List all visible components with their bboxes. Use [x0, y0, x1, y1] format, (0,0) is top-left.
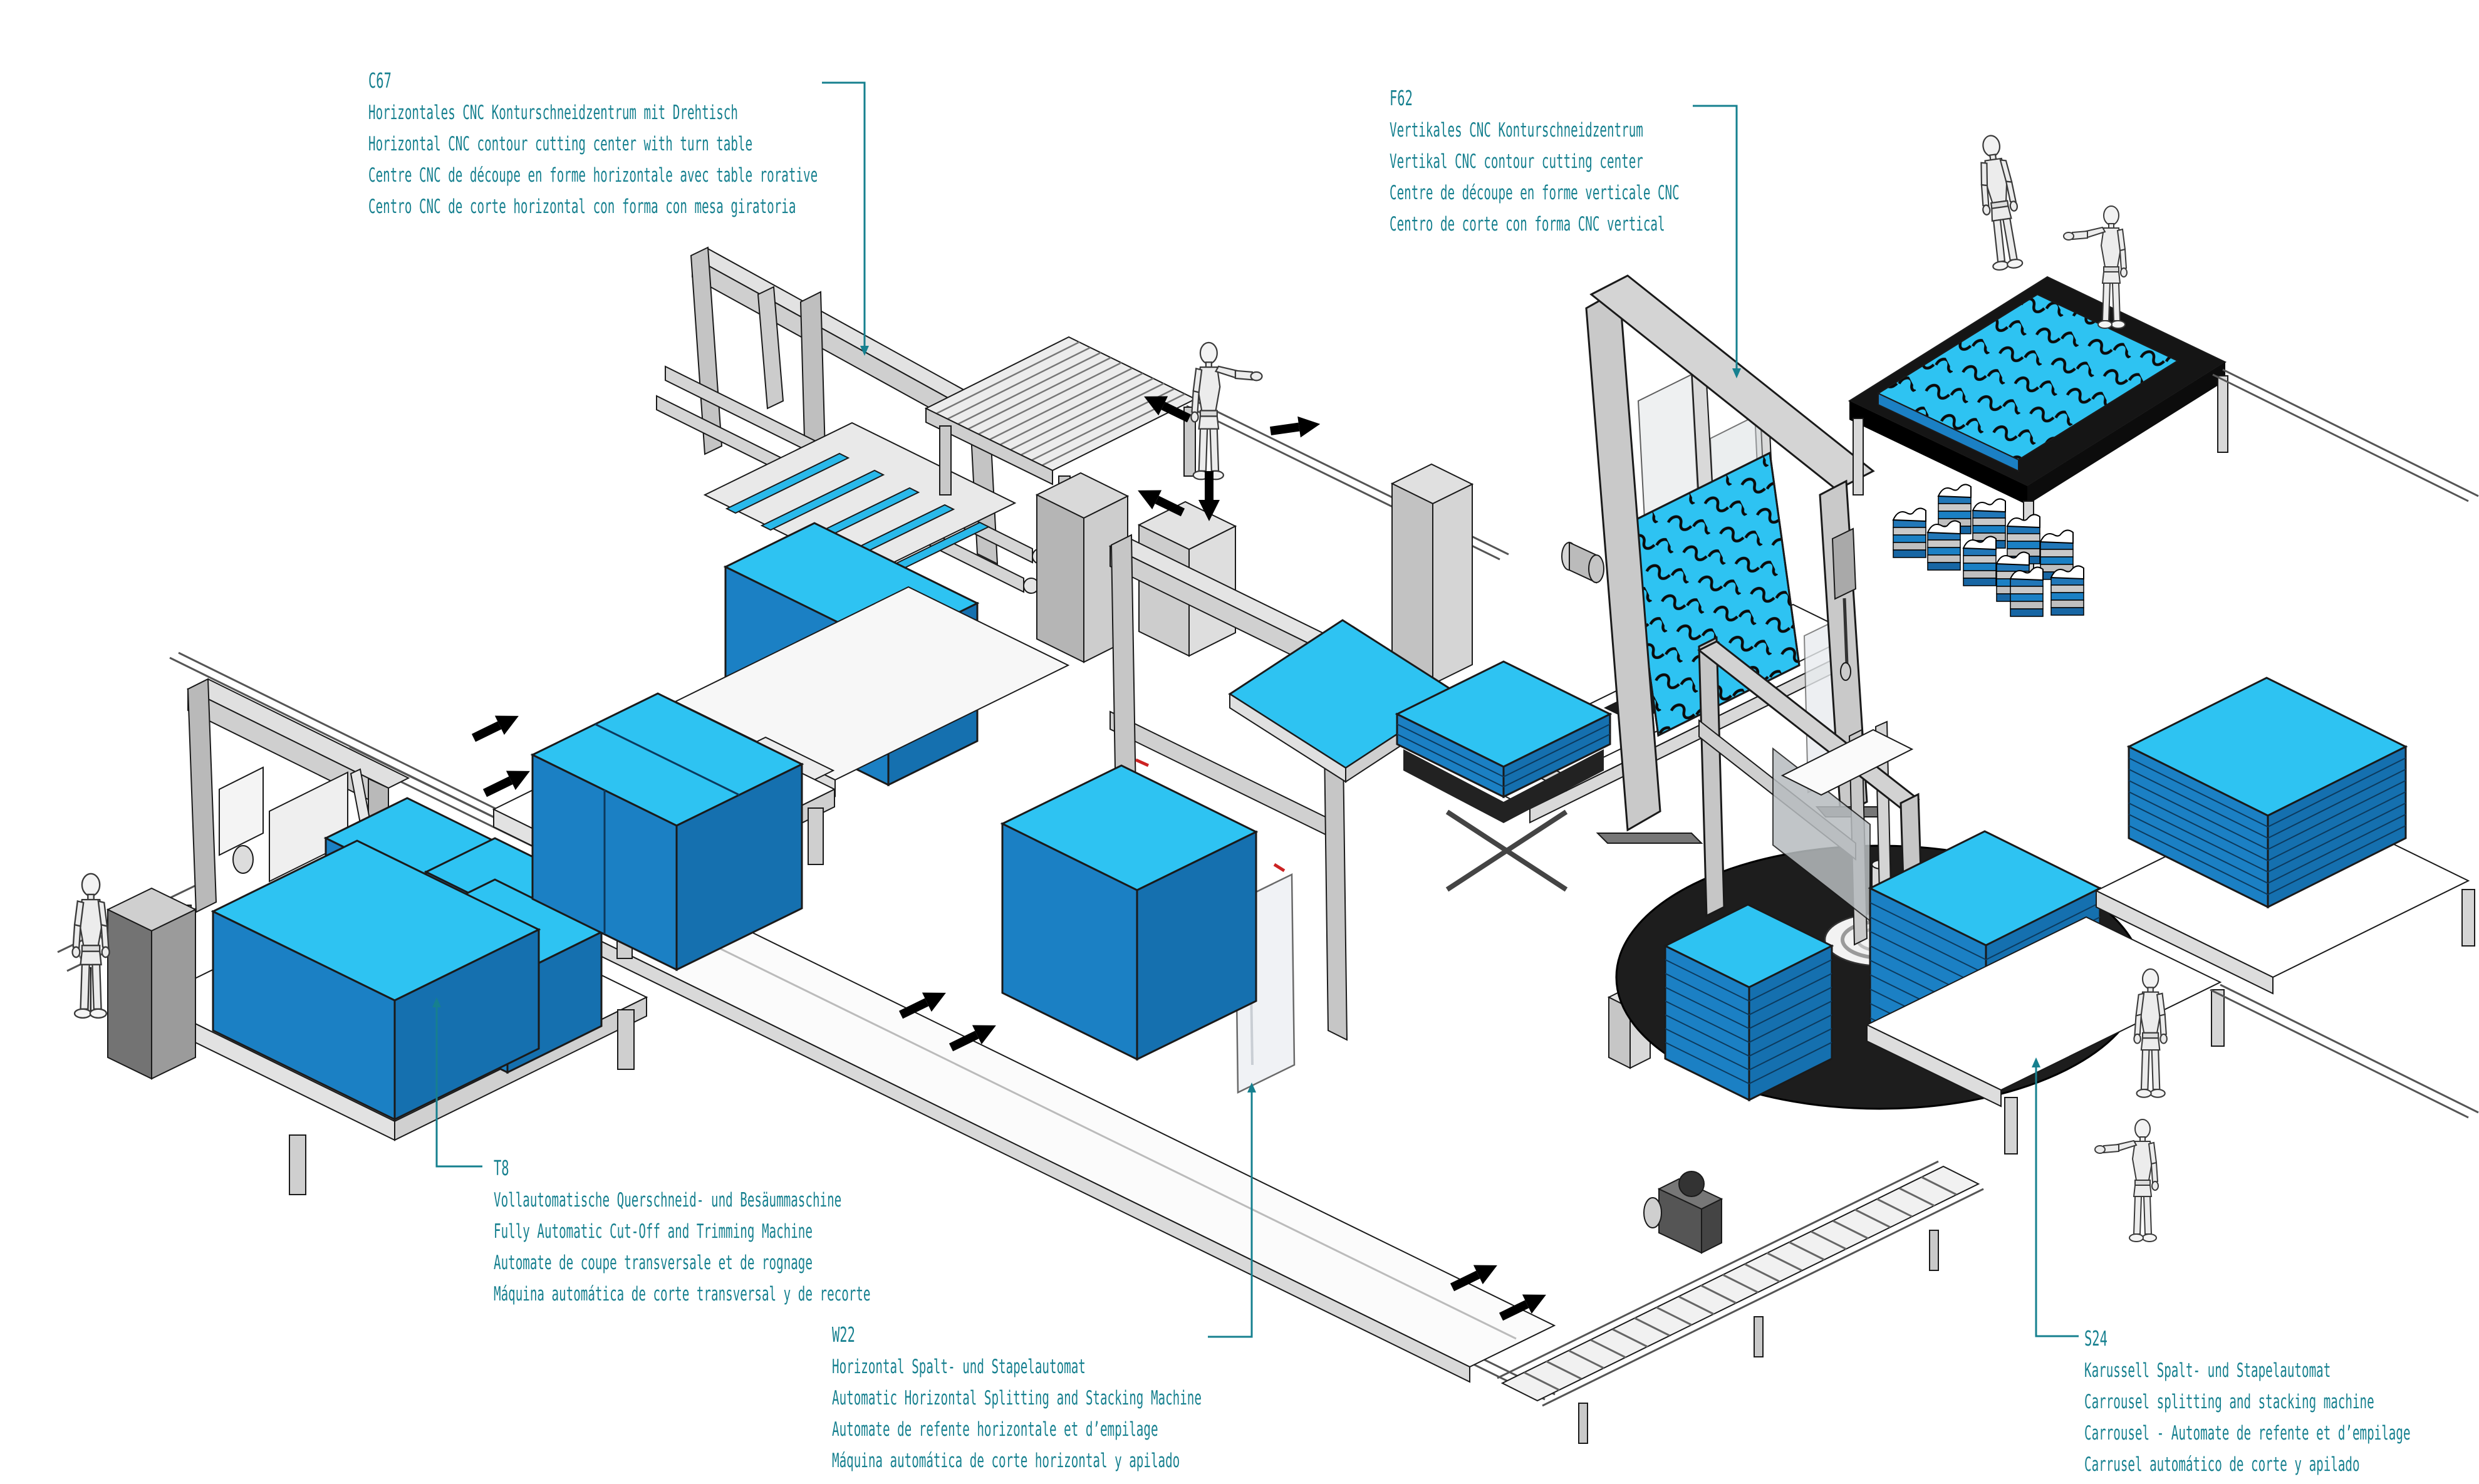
label-w22-de: Horizontal Spalt- und Stapelautomat	[832, 1356, 1086, 1378]
label-w22: W22 Horizontal Spalt- und Stapelautomat …	[832, 1324, 1202, 1472]
label-t8-es: Máquina automática de corte transversal …	[494, 1283, 870, 1305]
label-w22-es: Máquina automática de corte horizontal y…	[832, 1450, 1180, 1472]
label-s24: S24 Karussell Spalt- und Stapelautomat C…	[2084, 1327, 2411, 1476]
s24-drive-motor	[1644, 1171, 1722, 1253]
s24-infeed-roller-conveyor	[1497, 1161, 1983, 1443]
label-w22-fr: Automate de refente horizontale et d’emp…	[832, 1418, 1158, 1441]
label-c67: C67 Horizontales CNC Konturschneidzentru…	[368, 70, 818, 218]
w22-tall-cabinet	[1392, 464, 1472, 684]
label-t8: T8 Vollautomatische Querschneid- und Bes…	[494, 1157, 870, 1305]
label-c67-fr: Centre CNC de découpe en forme horizonta…	[368, 164, 818, 187]
label-f62-en: Vertikal CNC contour cutting center	[1390, 150, 1643, 173]
machine-t8-cutoff	[58, 679, 834, 1195]
label-c67-en: Horizontal CNC contour cutting center wi…	[368, 133, 752, 155]
mannequin-center-walking	[1191, 343, 1262, 479]
w22-foam-cube	[1002, 765, 1256, 1059]
f62-cutting-head	[1832, 529, 1856, 599]
flow-arrow	[469, 707, 524, 748]
leader-f62	[1693, 106, 1737, 368]
s24-foam-stack-left	[1665, 905, 1832, 1100]
label-s24-de: Karussell Spalt- und Stapelautomat	[2084, 1359, 2331, 1382]
label-c67-de: Horizontales CNC Konturschneidzentrum mi…	[368, 101, 738, 124]
leader-s24	[2036, 1066, 2079, 1336]
label-t8-de: Vollautomatische Querschneid- und Besäum…	[494, 1189, 841, 1212]
label-t8-fr: Automate de coupe transversale et de rog…	[494, 1252, 813, 1274]
label-s24-code: S24	[2084, 1327, 2107, 1351]
label-f62-fr: Centre de découpe en forme verticale CNC	[1390, 182, 1680, 204]
label-c67-es: Centro CNC de corte horizontal con forma…	[368, 195, 796, 218]
mannequin-f62-table-1	[1973, 133, 2025, 271]
label-w22-en: Automatic Horizontal Splitting and Stack…	[832, 1387, 1202, 1409]
f62-cut-piece-stacks	[1893, 484, 2084, 616]
label-f62-de: Vertikales CNC Konturschneidzentrum	[1390, 119, 1643, 142]
label-s24-en: Carrousel splitting and stacking machine	[2084, 1391, 2374, 1413]
label-t8-code: T8	[494, 1157, 509, 1180]
factory-layout-diagram: C67 Horizontales CNC Konturschneidzentru…	[0, 0, 2479, 1484]
leader-c67	[822, 83, 865, 346]
label-s24-fr: Carrousel - Automate de refente et d’emp…	[2084, 1422, 2411, 1445]
flow-arrow	[1269, 413, 1322, 442]
label-f62: F62 Vertikales CNC Konturschneidzentrum …	[1390, 87, 1680, 236]
mannequin-s24-operator	[2095, 1119, 2158, 1242]
label-f62-es: Centro de corte con forma CNC vertical	[1390, 213, 1665, 236]
t8-control-cabinet	[108, 888, 195, 1079]
label-w22-code: W22	[832, 1324, 855, 1347]
label-t8-en: Fully Automatic Cut-Off and Trimming Mac…	[494, 1220, 813, 1243]
label-s24-es: Carrusel automático de corte y apilado	[2084, 1453, 2360, 1476]
label-c67-code: C67	[368, 70, 392, 93]
label-f62-code: F62	[1390, 87, 1413, 110]
